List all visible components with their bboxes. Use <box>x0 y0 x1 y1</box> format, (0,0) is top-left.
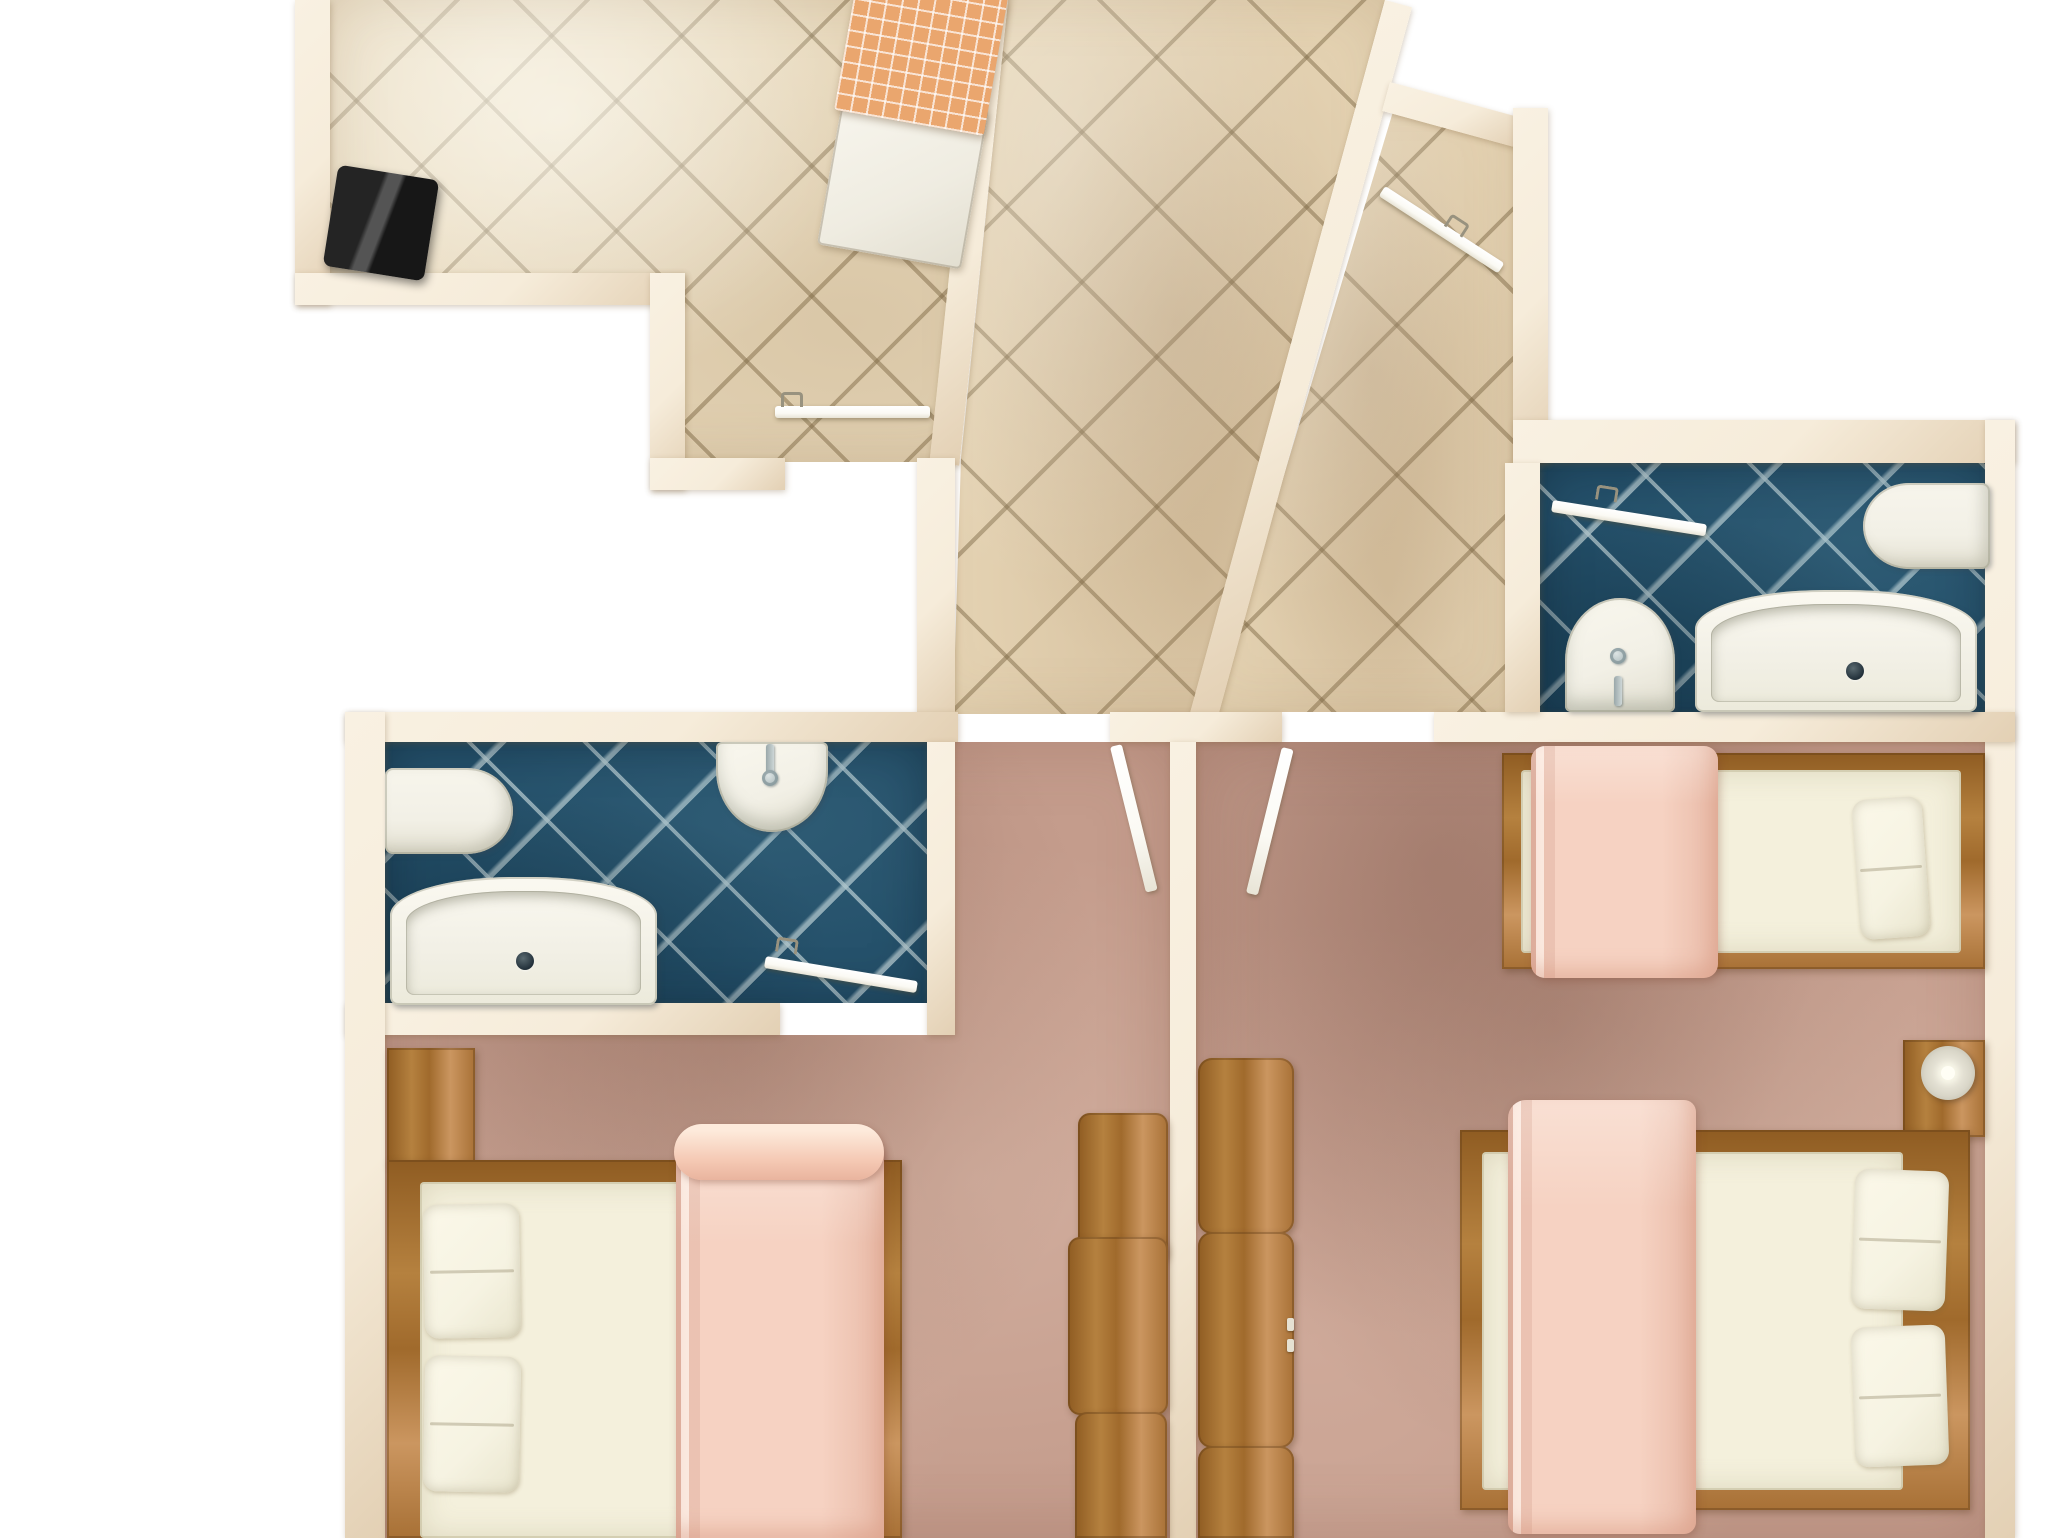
dresser-right-handle-b <box>1287 1339 1294 1352</box>
bed-left-pillow-bottom <box>423 1355 521 1493</box>
bed-right-double-pillow-top <box>1851 1168 1950 1311</box>
wall-hallway-left-strip <box>917 458 955 714</box>
dresser-right-2 <box>1198 1232 1294 1448</box>
dresser-left-2 <box>1068 1237 1168 1415</box>
bed-left-pillow-top <box>423 1203 521 1339</box>
faucet-knob-left <box>762 770 778 786</box>
dresser-right-3 <box>1198 1446 1294 1538</box>
dresser-left-3 <box>1075 1412 1167 1538</box>
dresser-right-handle-a <box>1287 1318 1294 1331</box>
faucet-stem-right <box>1614 676 1622 706</box>
bed-right-double-blanket <box>1508 1100 1696 1534</box>
drain-left <box>516 952 534 970</box>
faucet-knob-right <box>1610 648 1626 664</box>
dark-cabinet <box>323 165 440 282</box>
wall-main-a <box>345 712 958 742</box>
door-bathroom-left-handle <box>775 936 799 954</box>
wall-main-b <box>1110 712 1282 742</box>
bathtub-left <box>390 877 657 1005</box>
dresser-right-1 <box>1198 1058 1294 1234</box>
bed-left-blanket <box>676 1146 884 1538</box>
wall-bathroom-left-bottom <box>345 1003 780 1035</box>
drain-right <box>1846 662 1864 680</box>
lamp-bulb <box>1941 1066 1955 1080</box>
bathtub-right <box>1695 590 1977 712</box>
wall-center-divider <box>1170 742 1196 1538</box>
door-dining-handle <box>781 392 803 407</box>
toilet-left-bathroom <box>385 768 513 854</box>
door-dining <box>775 406 930 418</box>
bed-left-blanket-roll <box>674 1124 884 1180</box>
floor-plan <box>0 0 2048 1538</box>
wall-bathroom-left-right <box>927 742 955 1035</box>
bedside-table-left <box>387 1048 475 1165</box>
bed-right-single-pillow <box>1851 796 1931 941</box>
bed-right-double-pillow-bottom <box>1851 1324 1950 1467</box>
wall-outer-left <box>345 712 385 1538</box>
wall-dining-bottom-2 <box>650 458 785 490</box>
wall-entry-right <box>1513 108 1548 463</box>
bed-right-single-blanket <box>1531 746 1718 978</box>
toilet-right-bathroom <box>1863 483 1990 569</box>
wall-dining-bottom <box>295 273 685 305</box>
wall-main-c <box>1434 712 2015 742</box>
wall-bathroom-right-top <box>1513 420 2015 463</box>
door-bathroom-right-handle <box>1595 484 1619 502</box>
wall-bathroom-right-left <box>1505 463 1540 712</box>
wall-outer-right <box>1985 420 2015 1538</box>
